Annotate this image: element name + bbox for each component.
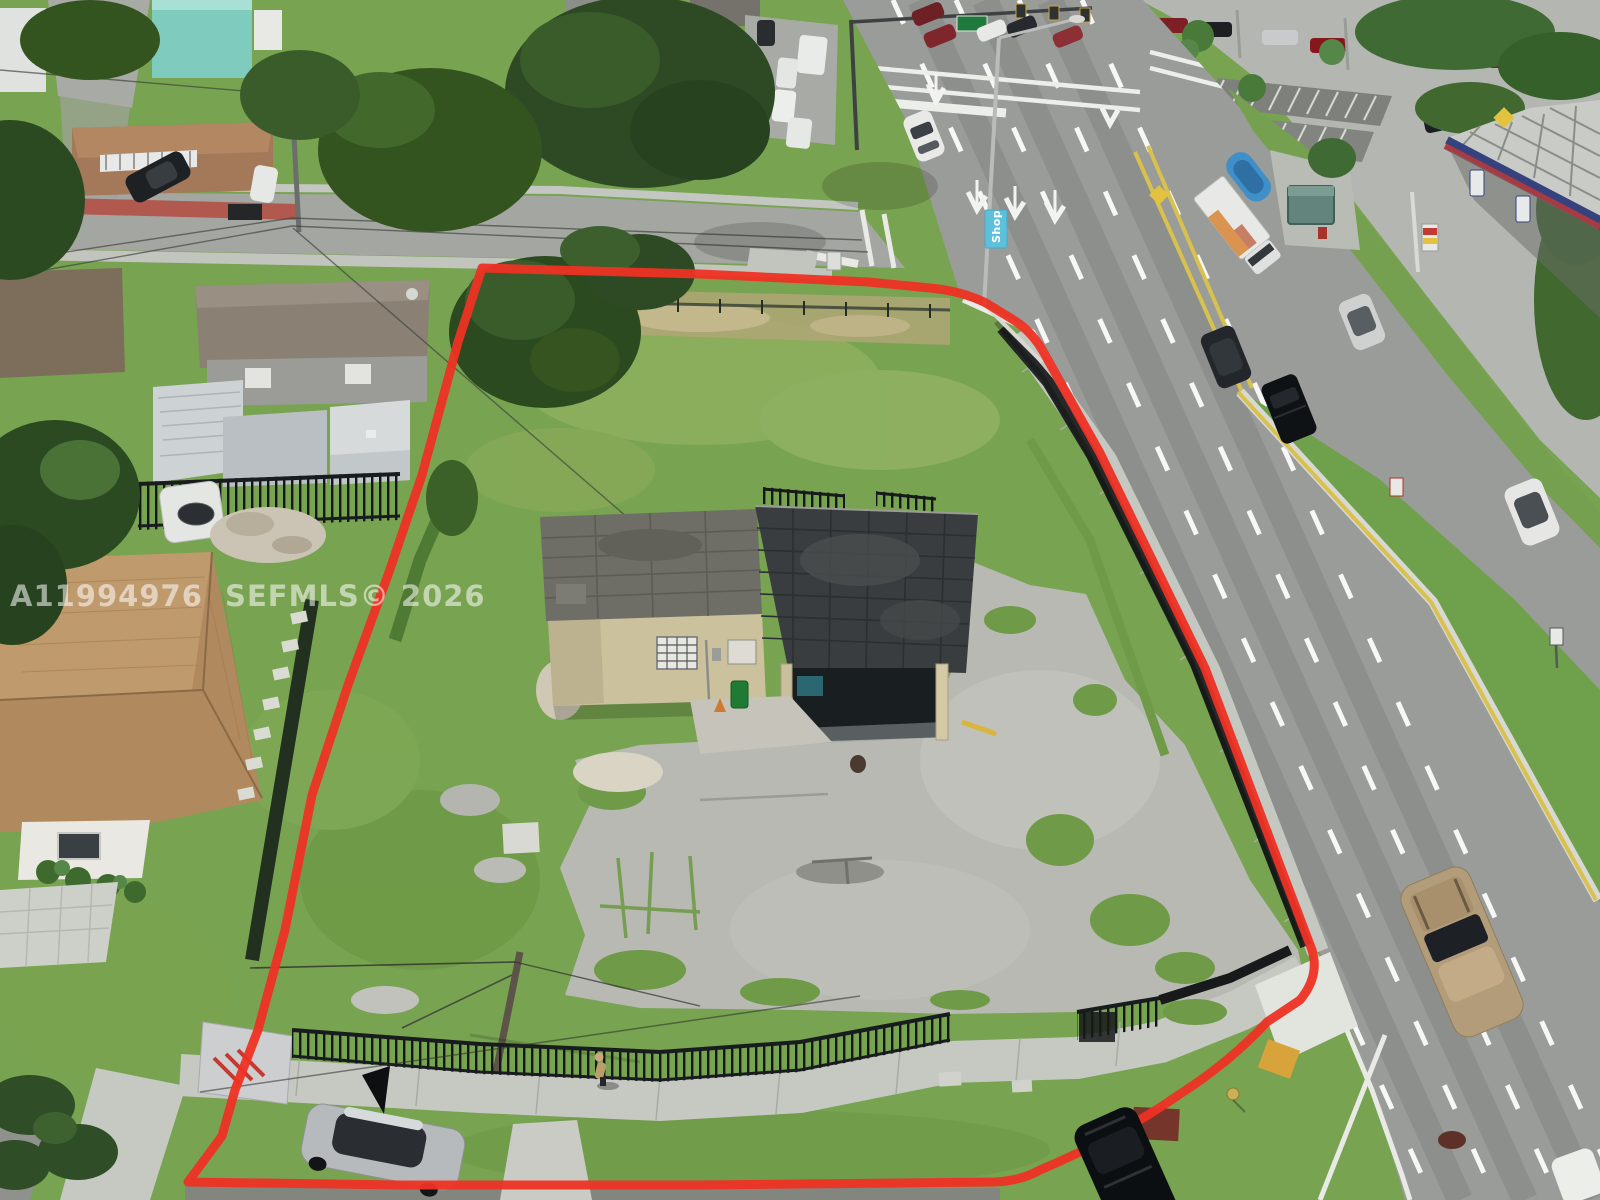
meter-box — [712, 648, 721, 661]
satellite-dish — [406, 288, 418, 300]
shop-banner-text: Shop — [990, 210, 1003, 243]
green-trash-can — [731, 681, 748, 708]
teal-roof-edge — [152, 0, 252, 10]
shop-banner: Shop — [985, 210, 1007, 248]
mls-watermark: A11994976 SEFMLS© 2026 — [10, 579, 486, 613]
roof-stain — [598, 529, 702, 561]
utility-cabinet — [827, 252, 841, 270]
teal-object-inside — [797, 676, 823, 696]
verge-tree — [1308, 138, 1356, 178]
gate-panel — [1079, 1012, 1115, 1042]
stepping-pad — [1012, 1079, 1033, 1092]
roof-patch — [556, 584, 586, 604]
trampoline — [178, 503, 214, 525]
corner-grass — [1163, 999, 1227, 1025]
dark-car — [757, 20, 775, 46]
teal-roof-building — [152, 0, 252, 78]
building-wall-shade — [548, 617, 604, 706]
black-gate — [228, 204, 262, 220]
stepping-pad — [939, 1071, 962, 1086]
house-window — [58, 833, 100, 859]
gravel-pile — [210, 507, 326, 563]
canopy-column — [936, 664, 948, 740]
no-parking-sign — [1390, 478, 1403, 496]
traffic-signal — [1049, 6, 1059, 20]
tree-shadow — [822, 162, 938, 210]
fuel-pump — [1516, 196, 1530, 222]
pavement-remnant — [440, 784, 500, 816]
trash-bin — [1318, 227, 1327, 239]
pavement-remnant — [351, 986, 419, 1014]
white-box-truck — [796, 35, 828, 76]
scene-svg: Shop A11994976 SEFMLS© 2026 — [0, 0, 1600, 1200]
small-window — [728, 640, 756, 664]
canopy-stain — [880, 600, 960, 640]
bush — [426, 460, 478, 536]
barrel — [850, 755, 866, 773]
traffic-signal — [1016, 4, 1026, 18]
canopy-stain — [800, 534, 920, 586]
brown-roof-house — [0, 268, 125, 378]
aerial-photo: Shop A11994976 SEFMLS© 2026 — [0, 0, 1600, 1200]
white-van — [775, 57, 798, 89]
sand-patch — [573, 752, 663, 792]
manhole — [1438, 1131, 1466, 1149]
white-pickup — [785, 117, 812, 149]
fuel-pump — [1470, 170, 1484, 196]
median-sign — [1550, 628, 1563, 645]
white-shed — [254, 10, 282, 50]
concrete-square-pad — [502, 822, 540, 854]
pavement-remnant — [474, 857, 526, 883]
dirt-patch — [810, 315, 910, 337]
